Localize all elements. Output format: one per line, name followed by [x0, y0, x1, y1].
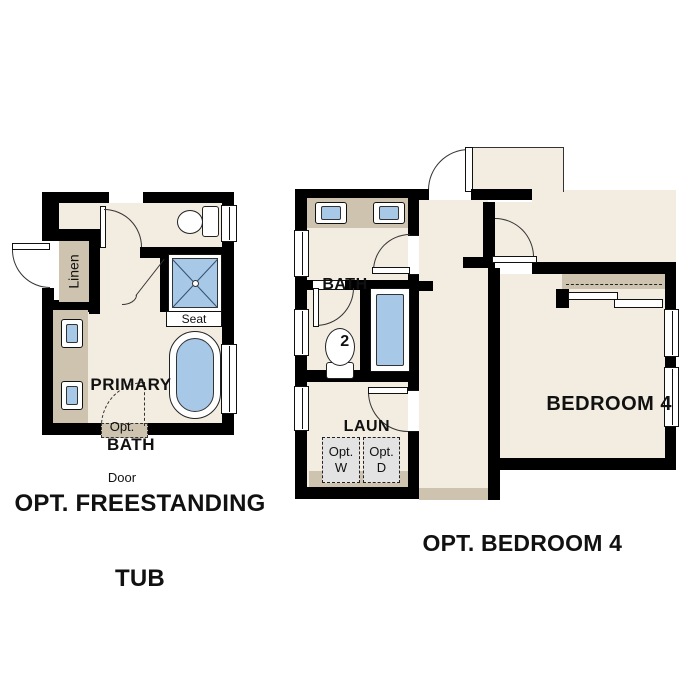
wall — [532, 262, 676, 274]
toilet-room-door-leaf — [313, 288, 319, 327]
wall — [463, 257, 495, 268]
bath2-label-line2: 2 — [320, 332, 370, 351]
opt-washer-line2: W — [329, 460, 354, 476]
hall-landing-floor — [419, 200, 488, 488]
shower-pan — [172, 258, 218, 308]
closet-sliding-door — [568, 292, 618, 300]
opt-dryer-line1: Opt. — [369, 444, 394, 460]
bath2-label: BATH 2 — [320, 237, 370, 389]
laundry-door-opening — [408, 390, 419, 432]
linen-label-text: Linen — [66, 254, 83, 288]
bedroom4-door-leaf — [492, 256, 537, 263]
shower-seat: Seat — [166, 311, 222, 327]
wall — [419, 281, 433, 291]
linen-label: Linen — [59, 241, 89, 302]
right-plan-caption-text: OPT. BEDROOM 4 — [423, 530, 623, 556]
floorplan-canvas: Linen Seat Opt. Door — [0, 0, 687, 687]
wall — [500, 458, 676, 470]
opt-dryer-box: Opt. D — [363, 437, 400, 483]
wall — [483, 202, 495, 257]
window — [221, 344, 237, 414]
linen-door-leaf — [12, 243, 50, 250]
seat-label: Seat — [182, 312, 207, 326]
right-plan-caption: OPT. BEDROOM 4 — [383, 506, 603, 581]
bedroom4-label-text: BEDROOM 4 — [546, 393, 672, 415]
freestanding-tub-basin — [176, 338, 214, 412]
wall — [488, 268, 500, 500]
wall — [665, 262, 676, 470]
laundry-label: LAUN — [314, 398, 366, 455]
wall — [42, 229, 91, 241]
bath2-label-line1: BATH — [320, 275, 370, 294]
laundry-label-text: LAUN — [344, 418, 390, 435]
linen-door-swing-arc — [12, 250, 50, 288]
opt-dryer-line2: D — [369, 460, 394, 476]
wall — [471, 189, 532, 200]
stair-door-swing-arc — [428, 149, 469, 190]
window — [294, 230, 309, 277]
left-plan-caption: OPT. FREESTANDING TUB — [10, 441, 270, 641]
bedroom4-label: BEDROOM 4 — [510, 371, 656, 437]
sink-basin — [321, 206, 341, 220]
shower-drain — [192, 280, 199, 287]
toilet-tank — [202, 206, 219, 237]
bath2-tub-basin — [376, 294, 404, 366]
left-plan-caption-line2: TUB — [10, 566, 270, 591]
window — [221, 205, 237, 242]
window — [294, 309, 309, 356]
laundry-door-leaf — [368, 387, 408, 394]
bath2-door-leaf — [372, 267, 410, 274]
upper-hall-floor — [532, 190, 676, 262]
closet-sliding-door — [614, 299, 663, 308]
primary-bath-label-line1: PRIMARY — [86, 375, 176, 395]
sink-basin — [379, 206, 399, 220]
stair-landing-floor — [473, 147, 564, 192]
landing-bottom-strip — [419, 488, 488, 500]
closet-shelf — [562, 274, 665, 289]
window — [294, 386, 309, 431]
sink-basin — [66, 386, 78, 405]
wall — [143, 192, 234, 203]
window — [664, 309, 679, 357]
closet-rod-dashed-line — [566, 284, 662, 285]
left-plan-caption-line1: OPT. FREESTANDING — [10, 491, 270, 516]
toilet-bowl — [177, 210, 203, 234]
stair-door-leaf — [465, 147, 473, 192]
wall — [295, 487, 419, 499]
sink-basin — [66, 324, 78, 343]
wall — [408, 189, 419, 235]
